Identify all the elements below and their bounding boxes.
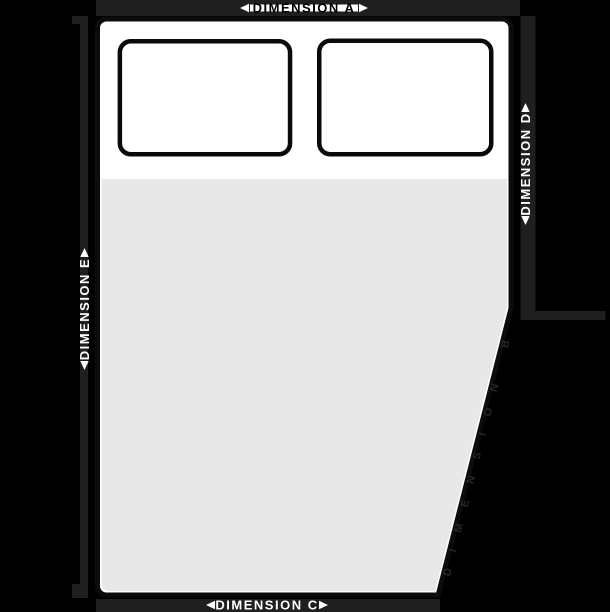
svg-text:DIMENSION D: DIMENSION D: [518, 112, 533, 215]
svg-text:DIMENSION C: DIMENSION C: [215, 598, 318, 612]
svg-text:DIMENSION E: DIMENSION E: [77, 258, 92, 360]
svg-text:DIMENSION A: DIMENSION A: [253, 1, 356, 16]
